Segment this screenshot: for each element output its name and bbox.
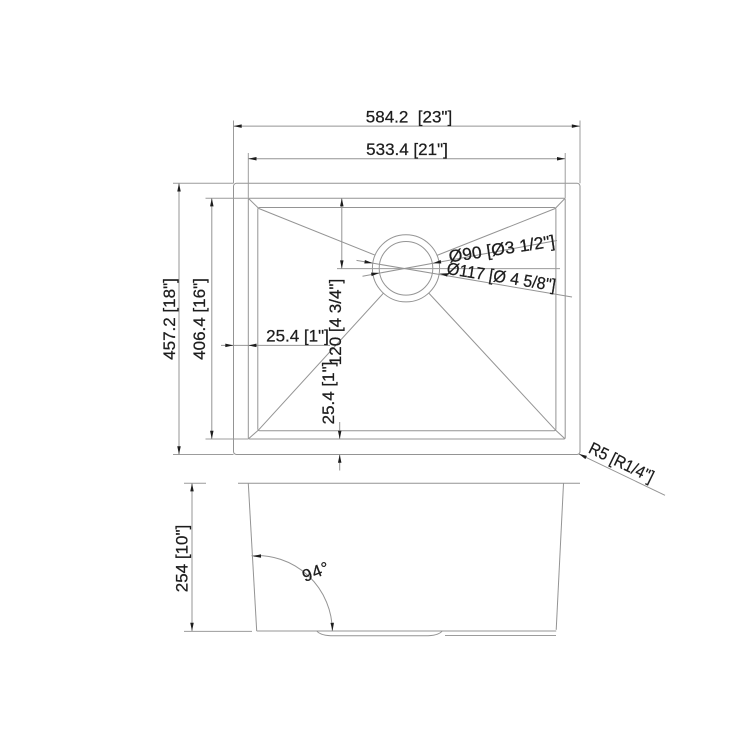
svg-text:25.4 [1"]: 25.4 [1"] xyxy=(319,362,338,425)
svg-text:457.2 [18"]: 457.2 [18"] xyxy=(160,278,179,360)
svg-text:254 [10"]: 254 [10"] xyxy=(173,525,192,592)
svg-text:120 [4 3/4"]: 120 [4 3/4"] xyxy=(326,279,345,365)
svg-text:584.2 [23"]: 584.2 [23"] xyxy=(366,108,452,127)
svg-text:25.4 [1"]: 25.4 [1"] xyxy=(266,327,329,346)
svg-text:533.4 [21"]: 533.4 [21"] xyxy=(366,140,448,159)
svg-text:406.4 [16"]: 406.4 [16"] xyxy=(190,278,209,360)
